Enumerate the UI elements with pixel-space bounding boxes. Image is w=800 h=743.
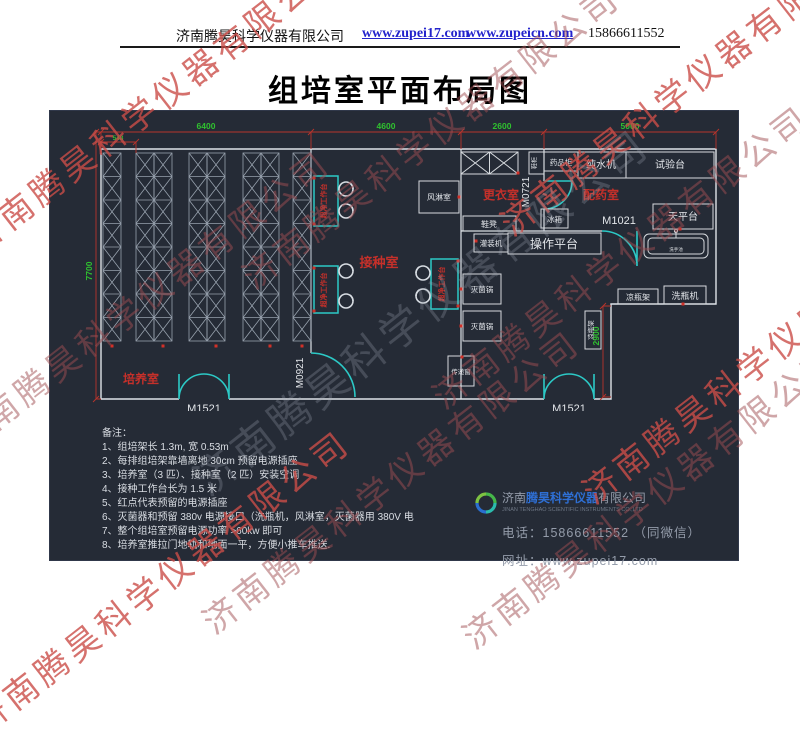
footer-phone: 15866611552 （同微信） xyxy=(543,526,702,540)
label-sterilizer-2: 灭菌锅 xyxy=(471,321,494,331)
footer-company: 济南腾昊科学仪器有限公司 xyxy=(502,489,732,506)
floor-plan: 6400 4600 2600 5000 548 7700 2900 培养室 接种… xyxy=(50,111,740,411)
note-line: 7、整个组培室预留电源功率 >60kw 即可 xyxy=(102,525,414,539)
notes-title: 备注： xyxy=(102,427,414,441)
wardrobe-x-cabinet xyxy=(461,152,518,174)
footer-web-line: 网址：www.zupei17.com xyxy=(502,550,732,569)
cad-panel: 6400 4600 2600 5000 548 7700 2900 培养室 接种… xyxy=(49,110,739,561)
company-name: 济南腾昊科学仪器有限公司 xyxy=(176,26,344,46)
door-m0721 xyxy=(544,181,572,209)
label-sterilizer-1: 灭菌锅 xyxy=(471,284,494,294)
label-balance: 天平台 xyxy=(668,210,698,223)
footer-company-suffix: 有限公司 xyxy=(598,491,646,505)
note-line: 2、每排组培架靠墙离地 30cm 预留电源插座 xyxy=(102,455,414,469)
label-fridge: 冰箱 xyxy=(547,214,562,224)
label-m1521-left: M1521 xyxy=(187,403,221,411)
outer-walls xyxy=(101,149,716,399)
footer-company-brand: 腾昊科学仪器 xyxy=(526,491,598,505)
room-culture: 培养室 xyxy=(123,371,159,386)
footer-company-en: JINAN TENGHAO SCIENTIFIC INSTRUMENTS CO.… xyxy=(502,507,732,513)
footer-web: www.zupei17.com xyxy=(543,554,659,568)
note-line: 1、组培架长 1.3m, 宽 0.53m xyxy=(102,441,414,455)
clean-bench-label-2: 超净工作台 xyxy=(319,273,328,308)
footer-company-prefix: 济南 xyxy=(502,491,526,505)
room-changing: 更衣室 xyxy=(483,187,519,202)
label-pass-window: 传递窗 xyxy=(451,367,471,376)
page-title: 组培室平面布局图 xyxy=(268,66,532,110)
footer-block: 济南腾昊科学仪器有限公司 JINAN TENGHAO SCIENTIFIC IN… xyxy=(502,489,732,569)
label-m1521-right: M1521 xyxy=(552,403,586,411)
door-m1021 xyxy=(602,231,637,266)
company-logo-icon xyxy=(474,491,498,515)
link-zupei17[interactable]: www.zupei17.com xyxy=(362,26,469,42)
dim-6400: 6400 xyxy=(197,121,216,131)
label-medicine-cabinet: 药品柜 xyxy=(550,157,573,167)
door-m1521-left xyxy=(179,374,229,399)
footer-web-label: 网址： xyxy=(502,554,543,568)
note-line: 4、接种工作台长为 1.5 米 xyxy=(102,483,414,497)
note-line: 5、红点代表预留的电源插座 xyxy=(102,497,414,511)
label-bottle-rack-v: 凉瓶架 xyxy=(586,320,595,340)
label-filling-machine: 灌装机 xyxy=(480,238,503,248)
label-m0921: M0921 xyxy=(295,357,306,388)
note-line: 3、培养室（3 匹）、接种室（2 匹）安装空调 xyxy=(102,469,414,483)
label-m1021: M1021 xyxy=(602,215,636,227)
header-phone: 15866611552 xyxy=(588,26,664,42)
label-air-shower: 风淋室 xyxy=(427,192,451,202)
label-bottle-rack-h: 凉瓶架 xyxy=(626,292,650,302)
dim-4600: 4600 xyxy=(377,121,396,131)
label-test-bench: 试验台 xyxy=(655,158,685,171)
label-pure-water: 纯水机 xyxy=(586,158,616,171)
page-header: 济南腾昊科学仪器有限公司 www.zupei17.com www.zupeicn… xyxy=(0,26,800,46)
room-dispensing: 配药室 xyxy=(583,187,619,202)
door-m1521-right xyxy=(544,374,594,399)
stools xyxy=(339,182,430,308)
dim-5000: 5000 xyxy=(621,121,640,131)
dim-548: 548 xyxy=(113,135,124,142)
notes-block: 备注： 1、组培架长 1.3m, 宽 0.53m 2、每排组培架靠墙离地 30c… xyxy=(102,427,414,553)
link-zupeicn[interactable]: www.zupeicn.com xyxy=(466,26,573,42)
room-inoculation: 接种室 xyxy=(359,255,398,270)
note-line: 8、培养室推拉门地轨和地面一平，方便小推车推送. xyxy=(102,539,414,553)
note-line: 6、灭菌器和预留 380v 电源接口（洗瓶机，风淋室，灭菌器用 380V 电 xyxy=(102,511,414,525)
door-m0921 xyxy=(311,353,355,397)
sink-box xyxy=(644,229,708,258)
inner-walls xyxy=(311,149,602,399)
label-shoe-cabinet: 鞋柜 xyxy=(531,157,539,169)
label-m0721: M0721 xyxy=(521,176,532,207)
header-rule xyxy=(120,46,680,48)
footer-phone-line: 电话：15866611552 （同微信） xyxy=(502,522,732,541)
clean-bench-label-3: 超净工作台 xyxy=(437,267,446,302)
dimension-lines xyxy=(93,129,719,402)
dim-7700: 7700 xyxy=(84,261,94,280)
footer-phone-label: 电话： xyxy=(502,526,543,540)
dim-2600: 2600 xyxy=(493,121,512,131)
label-operation-platform: 操作平台 xyxy=(530,236,578,251)
label-shoe-bench: 鞋凳 xyxy=(481,219,497,229)
label-bottle-washer: 洗瓶机 xyxy=(671,290,698,301)
clean-bench-label-1: 超净工作台 xyxy=(319,184,328,219)
label-sink: 洗手池 xyxy=(669,246,683,253)
culture-racks xyxy=(103,153,311,341)
